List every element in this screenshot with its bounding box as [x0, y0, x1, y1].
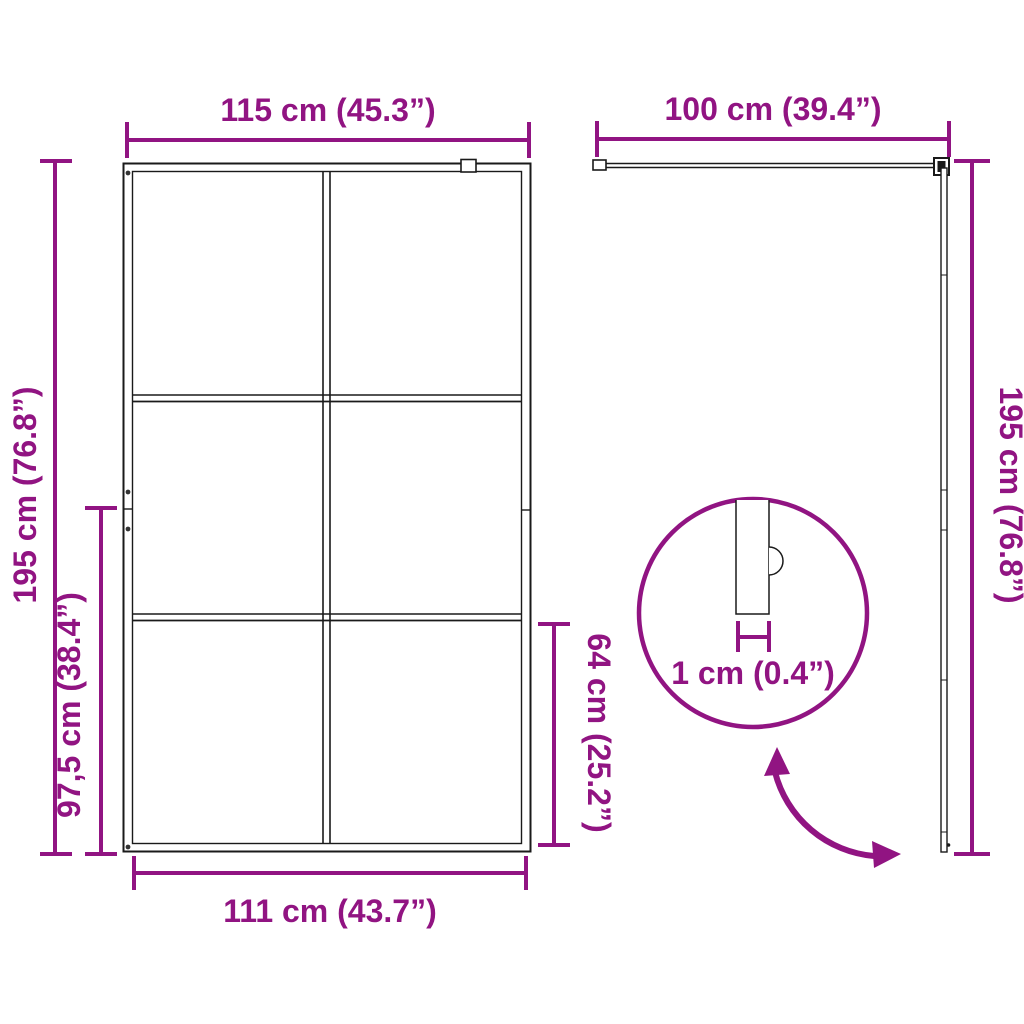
detail-view: 1 cm (0.4”) — [639, 499, 867, 727]
glass-cross-section — [736, 500, 769, 614]
dim-height-partial-right-label: 64 cm (25.2”) — [581, 633, 617, 832]
arrow-head-up — [764, 747, 790, 776]
diagram-svg: 115 cm (45.3”) 195 cm (76.8”) 97,5 cm (3… — [0, 0, 1024, 1024]
dim-arm-length-top: 100 cm (39.4”) — [597, 91, 949, 157]
dim-height-left-label: 195 cm (76.8”) — [7, 386, 43, 603]
screw-mid-upper — [126, 490, 131, 495]
glass-edge-bottom-stud — [947, 843, 951, 847]
dim-height-partial-right: 64 cm (25.2”) — [538, 624, 617, 845]
dim-height-right: 195 cm (76.8”) — [954, 161, 1024, 854]
glass-edge-profile — [941, 168, 947, 852]
dim-width-top-label: 115 cm (45.3”) — [220, 92, 435, 128]
screw-top — [126, 171, 131, 176]
arrow-head-right — [872, 841, 901, 868]
dimension-diagram: 115 cm (45.3”) 195 cm (76.8”) 97,5 cm (3… — [0, 0, 1024, 1024]
dim-width-bottom: 111 cm (43.7”) — [134, 856, 526, 929]
screw-bottom — [126, 845, 131, 850]
top-bracket — [461, 160, 476, 173]
screw-mid-lower — [126, 527, 131, 532]
dim-width-top: 115 cm (45.3”) — [127, 92, 529, 158]
arm-wall-plate — [593, 160, 606, 170]
dim-height-partial-left: 97,5 cm (38.4”) — [51, 508, 117, 854]
arrow-arc — [775, 772, 874, 856]
dim-glass-thickness-label: 1 cm (0.4”) — [671, 655, 835, 691]
front-view — [124, 160, 531, 852]
dim-height-partial-left-label: 97,5 cm (38.4”) — [51, 592, 87, 818]
detail-pointer-arrow — [764, 747, 901, 868]
door-outer-frame — [124, 164, 531, 852]
dim-height-right-label: 195 cm (76.8”) — [993, 386, 1024, 603]
dim-width-bottom-label: 111 cm (43.7”) — [223, 893, 436, 929]
dim-arm-length-label: 100 cm (39.4”) — [664, 91, 881, 127]
